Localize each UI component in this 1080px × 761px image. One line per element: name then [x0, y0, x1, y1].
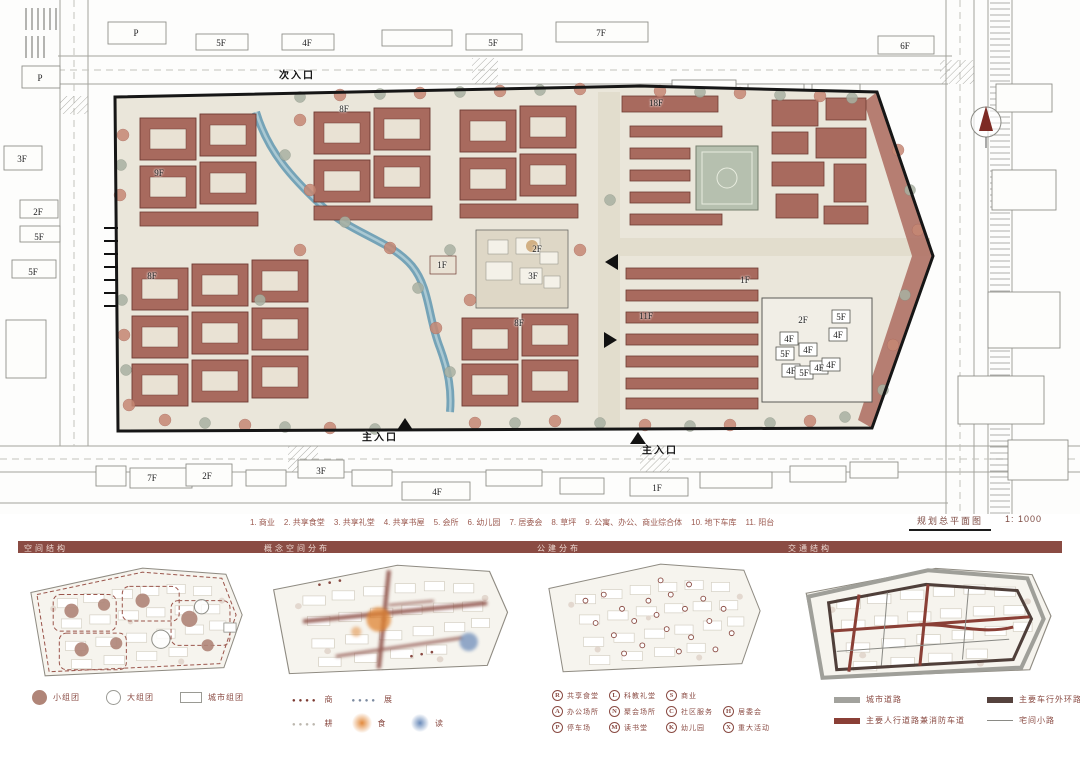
masterplan-sheet: P5F4F5F7F6FP3F2F5F5F7F2F3F4F1F9F8F8F18F1… [0, 0, 1080, 761]
legend-label: 重大活动 [738, 723, 770, 733]
panel-traffic-structure-diagram [786, 558, 1070, 690]
concept-swatch-icon [352, 695, 379, 704]
caption-item: 7. 居委会 [509, 517, 542, 528]
panel-concept-space-diagram [258, 554, 524, 692]
road-swatch-icon [987, 720, 1013, 721]
caption-item: 10. 地下车库 [691, 517, 736, 528]
road-swatch-icon [834, 718, 860, 724]
legend-label: 居委会 [738, 707, 762, 717]
circled-letter-icon: N [609, 706, 620, 717]
floor-label: 3F [316, 466, 326, 476]
legend-item: 小组团 [32, 690, 80, 705]
floor-label: 5F [488, 38, 498, 48]
legend-item: L 科教礼堂 [609, 690, 656, 701]
legend-item: 大组团 [106, 690, 154, 705]
legend-label: 办公场所 [567, 707, 599, 717]
circled-letter-icon: C [666, 706, 677, 717]
floor-label: 5F [28, 267, 38, 277]
legend-item: K 幼儿园 [666, 722, 713, 733]
road-swatch-icon [834, 697, 860, 703]
floor-label: 4F [786, 366, 796, 376]
caption-row: 1. 商业2. 共享食堂3. 共享礼堂4. 共享书屋5. 会所6. 幼儿园7. … [0, 512, 1080, 540]
sheet-scale: 1: 1000 [1005, 514, 1042, 524]
legend-label: 城市道路 [866, 694, 902, 705]
section-title-spatial-structure: 空间结构 [24, 543, 68, 554]
caption-item: 2. 共享食堂 [284, 517, 325, 528]
floor-label: 2F [202, 471, 212, 481]
legend-item: N 聚会场所 [609, 706, 656, 717]
legend-label: 读 [435, 718, 444, 729]
legend-item: X 重大活动 [723, 722, 770, 733]
floor-label: 5F [780, 349, 790, 359]
legend-label: 食 [378, 718, 387, 729]
floor-label: 2F [33, 207, 43, 217]
legend-item: 宅间小路 [987, 715, 1080, 726]
legend-label: 主要车行外环路 [1019, 694, 1080, 705]
master-plan-drawing [0, 0, 1080, 514]
concept-swatch-icon [411, 714, 429, 732]
floor-label: 1F [652, 483, 662, 493]
circled-letter-icon: A [552, 706, 563, 717]
legend-item: 展 [352, 694, 394, 705]
floor-label: 4F [814, 363, 824, 373]
floor-label: 5F [836, 312, 846, 322]
floor-label: 11F [639, 311, 653, 321]
floor-label: 8F [514, 318, 524, 328]
entrance-label: 主入口 [362, 429, 398, 444]
floor-label: 1F [437, 260, 447, 270]
floor-label: 5F [216, 38, 226, 48]
caption-item: 11. 阳台 [746, 517, 775, 528]
legend-label: 幼儿园 [681, 723, 705, 733]
legend-item: 商 [292, 694, 334, 705]
legend-label: 读书堂 [624, 723, 648, 733]
caption-item: 3. 共享礼堂 [334, 517, 375, 528]
panel-public-buildings-diagram [536, 556, 771, 688]
floor-label: 4F [803, 345, 813, 355]
floor-label: 4F [784, 334, 794, 344]
legend-item: 城市道路 [834, 694, 965, 705]
legend-item: P 停车场 [552, 722, 599, 733]
section-title-traffic-structure: 交通结构 [788, 543, 832, 554]
circled-letter-icon: L [609, 690, 620, 701]
floor-label: 7F [596, 28, 606, 38]
legend-item: A 办公场所 [552, 706, 599, 717]
floor-label: 5F [799, 368, 809, 378]
legend-label: 商 [325, 694, 334, 705]
circled-letter-icon: X [723, 722, 734, 733]
caption-item: 5. 会所 [434, 517, 459, 528]
legend-spatial-structure: 小组团 大组团 城市组团 [32, 690, 244, 705]
legend-label: 商业 [681, 691, 697, 701]
floor-label: 18F [649, 98, 663, 108]
section-title-concept-space: 概念空间分布 [264, 543, 330, 554]
floor-label: 8F [147, 271, 157, 281]
circled-letter-icon: H [723, 706, 734, 717]
legend-item: 主要人行道路兼消防车道 [834, 715, 965, 726]
legend-label: 科教礼堂 [624, 691, 656, 701]
floor-label: 8F [339, 104, 349, 114]
legend-item: H 居委会 [723, 706, 770, 717]
floor-label: 3F [17, 154, 27, 164]
floor-label: P [133, 28, 138, 38]
entrance-label: 次入口 [279, 67, 315, 82]
legend-item: R 共享食堂 [552, 690, 599, 701]
floor-label: 1F [740, 275, 750, 285]
legend-label: 耕 [325, 718, 334, 729]
floor-label: 7F [147, 473, 157, 483]
panel-spatial-structure-diagram [18, 560, 253, 688]
legend-item: 主要车行外环路 [987, 694, 1080, 705]
cluster-swatch-icon [180, 692, 202, 703]
legend-item: 读 [411, 713, 444, 733]
legend-item: S 商业 [666, 690, 713, 701]
legend-label: 小组团 [53, 692, 80, 703]
legend-item: C 社区服务 [666, 706, 713, 717]
legend-label: 城市组团 [208, 692, 244, 703]
legend-label: 展 [384, 694, 393, 705]
floor-label: 6F [900, 41, 910, 51]
circled-letter-icon: S [666, 690, 677, 701]
circled-letter-icon: R [552, 690, 563, 701]
caption-item: 6. 幼儿园 [468, 517, 501, 528]
section-header-bar: 空间结构 概念空间分布 公建分布 交通结构 [18, 541, 1062, 553]
floor-label: P [37, 73, 42, 83]
legend-label: 停车场 [567, 723, 591, 733]
concept-swatch-icon [292, 695, 319, 704]
floor-label: 5F [34, 232, 44, 242]
concept-swatch-icon [292, 719, 319, 728]
legend-label: 宅间小路 [1019, 715, 1055, 726]
concept-swatch-icon [352, 713, 372, 733]
floor-label: 4F [833, 330, 843, 340]
cluster-swatch-icon [106, 690, 121, 705]
road-swatch-icon [987, 697, 1013, 703]
floor-label: 3F [528, 271, 538, 281]
floor-label: 4F [432, 487, 442, 497]
floor-label: 2F [798, 315, 808, 325]
floor-label: 9F [154, 168, 164, 178]
caption-item: 8. 草坪 [551, 517, 576, 528]
legend-label: 聚会场所 [624, 707, 656, 717]
legend-label: 主要人行道路兼消防车道 [866, 715, 965, 726]
circled-letter-icon: P [552, 722, 563, 733]
legend-traffic-structure: 城市道路 主要车行外环路 主要人行道路兼消防车道 宅间小路 [834, 694, 1080, 726]
legend-public-buildings: R 共享食堂 A 办公场所 P 停车场 L 科教礼堂 N 聚会场所 M 读书堂 … [552, 690, 770, 733]
entrance-label: 主入口 [642, 442, 678, 457]
sheet-title: 规划总平面图 [909, 514, 991, 531]
legend-label: 共享食堂 [567, 691, 599, 701]
section-title-public-buildings: 公建分布 [537, 543, 581, 554]
floor-label: 4F [826, 360, 836, 370]
cluster-swatch-icon [32, 690, 47, 705]
sheet-title-block: 规划总平面图 1: 1000 [909, 514, 1042, 531]
legend-item: 耕 [292, 713, 334, 733]
caption-item: 9. 公寓、办公、商业综合体 [585, 517, 682, 528]
caption-item: 1. 商业 [250, 517, 275, 528]
legend-label: 大组团 [127, 692, 154, 703]
circled-letter-icon: K [666, 722, 677, 733]
legend-item: 食 [352, 713, 394, 733]
caption-item: 4. 共享书屋 [384, 517, 425, 528]
plan-key-caption: 1. 商业2. 共享食堂3. 共享礼堂4. 共享书屋5. 会所6. 幼儿园7. … [250, 517, 774, 528]
legend-label: 社区服务 [681, 707, 713, 717]
legend-item: M 读书堂 [609, 722, 656, 733]
circled-letter-icon: M [609, 722, 620, 733]
legend-concept-space: 商 展 耕 食 读 [292, 694, 444, 733]
floor-label: 2F [532, 244, 542, 254]
floor-label: 4F [302, 38, 312, 48]
legend-item: 城市组团 [180, 690, 244, 705]
